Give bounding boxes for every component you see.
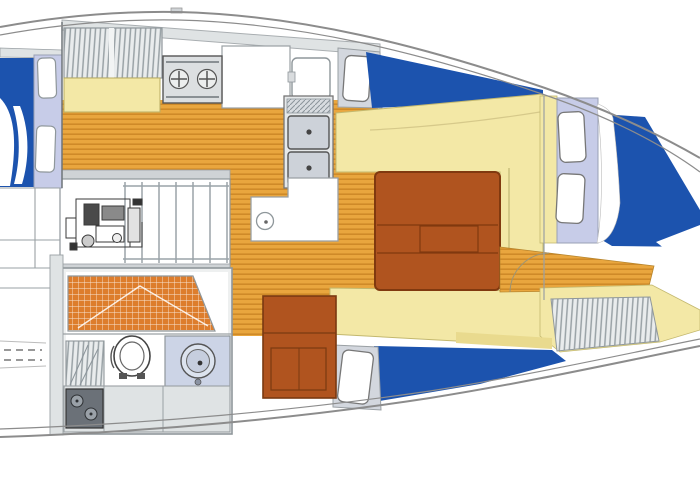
galley-stove xyxy=(163,56,222,103)
drain xyxy=(306,129,311,134)
head-compartment xyxy=(62,268,232,434)
aft-bulkhead-band xyxy=(50,255,63,435)
floorplan-drawing xyxy=(0,0,700,500)
bow-hatch-aft xyxy=(558,111,587,162)
companionway-block xyxy=(60,170,230,275)
faucet xyxy=(195,379,201,385)
cockpit-locker-lid xyxy=(37,58,56,99)
aft-cabinet xyxy=(263,296,336,398)
port-deck-wedge xyxy=(374,346,566,402)
quarter-berth xyxy=(64,78,160,112)
forward-lockers xyxy=(551,297,659,351)
icebox-lid xyxy=(288,58,330,99)
port-deck-hatch xyxy=(333,345,381,410)
cockpit-area xyxy=(0,22,63,435)
galley-worktop xyxy=(222,46,290,108)
drain xyxy=(198,361,203,366)
cockpit-locker-lid xyxy=(35,126,56,173)
icebox-latch xyxy=(288,72,295,82)
boat-floorplan xyxy=(0,0,700,500)
galley-sink-column xyxy=(284,96,333,188)
drain xyxy=(306,165,311,170)
saloon-table xyxy=(375,172,500,290)
bow-hatch-forward xyxy=(556,173,586,223)
aft-sink-unit xyxy=(66,389,103,428)
shower-floor xyxy=(68,276,215,331)
locker-divider xyxy=(109,28,114,78)
drainboard xyxy=(287,99,330,113)
vanity-counter xyxy=(165,336,230,390)
mast-center xyxy=(264,220,268,224)
v-berth-edge xyxy=(540,96,557,243)
transom-detail xyxy=(4,350,42,360)
